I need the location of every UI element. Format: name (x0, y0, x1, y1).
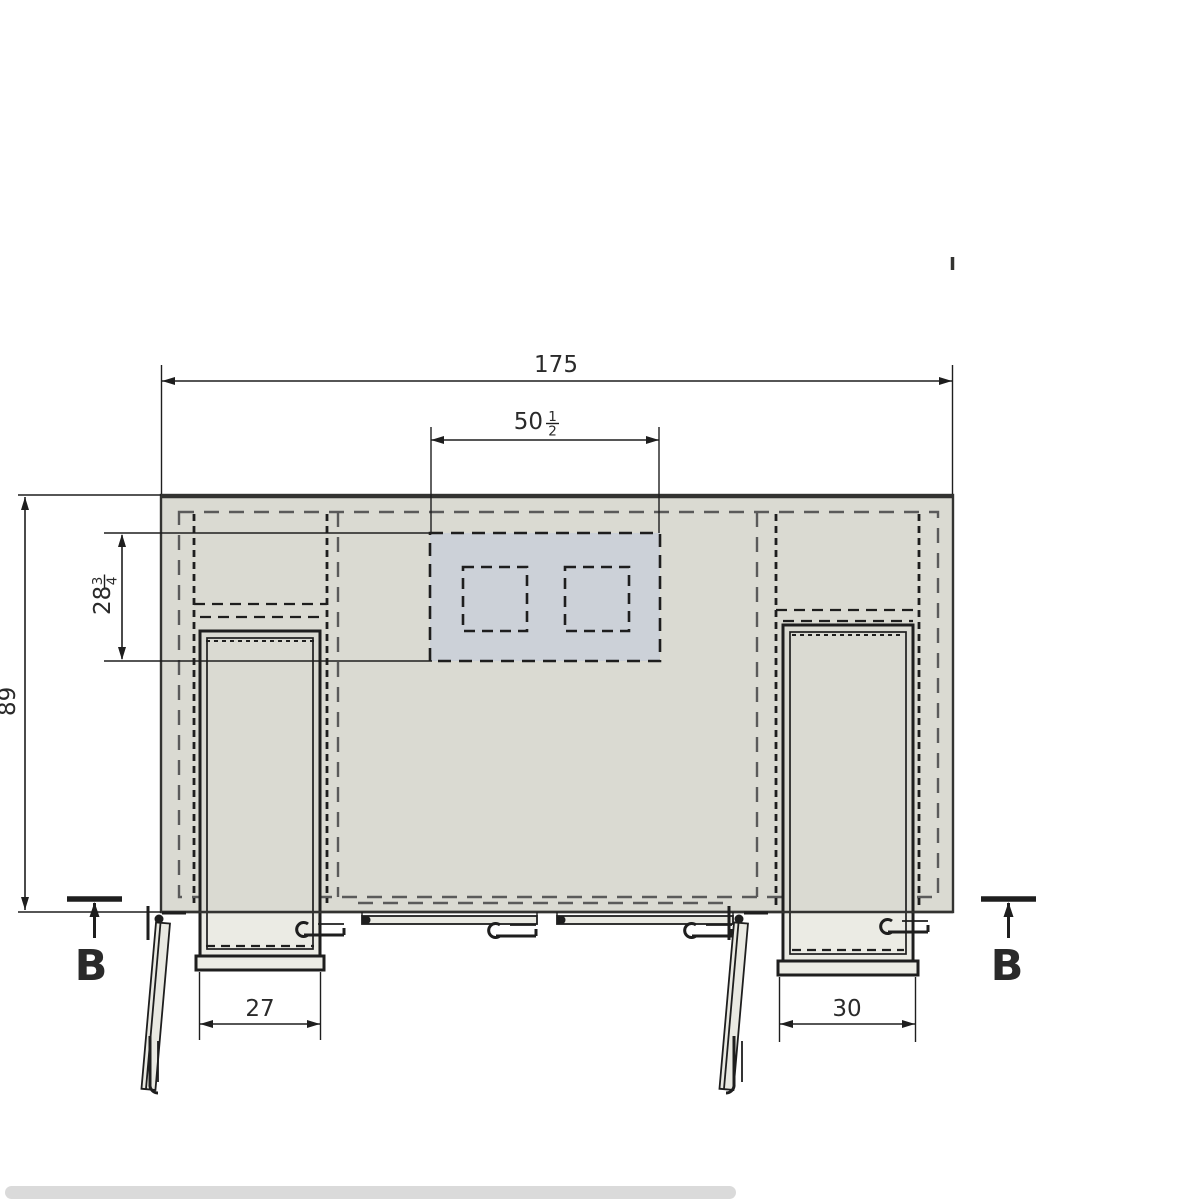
bottom-scrollbar[interactable] (5, 1186, 736, 1199)
right-open-door (719, 906, 768, 1093)
technical-drawing-page: 175 50 1 2 89 28 3 4 (0, 0, 1200, 1200)
dim-label-cutout-width: 50 (514, 409, 543, 435)
hinge-bracket-icon (489, 924, 536, 938)
center-door-left (362, 912, 538, 938)
dim-fraction-denominator: 4 (105, 577, 121, 586)
section-letter: B (991, 941, 1024, 991)
dim-right-unit-width: 30 (780, 977, 916, 1042)
dim-label-overall-width: 175 (534, 352, 578, 378)
cutout-zone (430, 533, 660, 661)
dim-overall-depth: 89 (0, 495, 161, 912)
dim-fraction-denominator: 2 (548, 424, 557, 440)
dim-label-right-unit: 30 (832, 996, 861, 1022)
section-marker-left: B (67, 899, 122, 991)
dim-left-unit-width: 27 (200, 972, 321, 1040)
dim-label-left-unit: 27 (245, 996, 274, 1022)
center-door-right (557, 912, 734, 938)
section-marker-right: B (981, 899, 1036, 991)
section-letter: B (75, 941, 108, 991)
hinge-pivot-dot (362, 916, 371, 925)
dim-label-overall-depth: 89 (0, 687, 21, 716)
cabinet-plan-drawing: 175 50 1 2 89 28 3 4 (0, 0, 1200, 1200)
hinge-bracket-icon (685, 924, 732, 938)
dim-label-cutout-depth: 28 (90, 586, 116, 615)
hinge-pivot-dot (557, 916, 566, 925)
left-open-door (141, 906, 186, 1093)
